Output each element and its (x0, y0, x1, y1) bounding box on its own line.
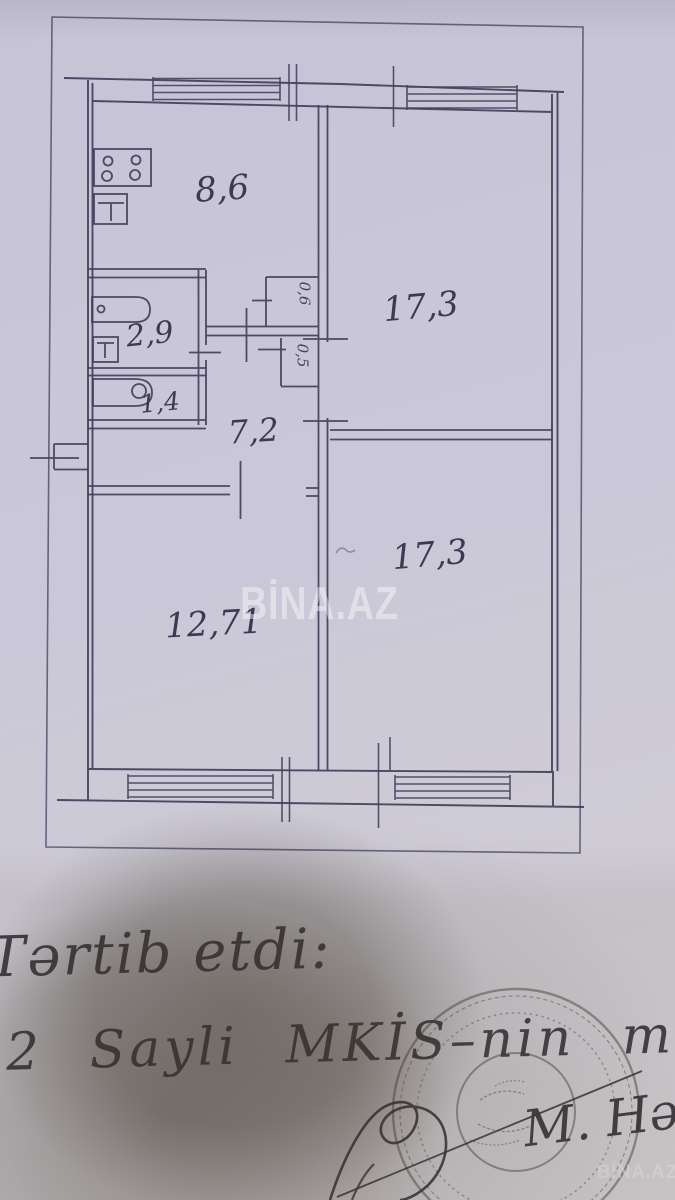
wall-kitchen-hall (206, 327, 318, 336)
bathtub-drain-icon (98, 306, 105, 313)
stove-burner-icon (102, 171, 112, 181)
pen-smudge (336, 548, 355, 553)
bathroom-top-wall (88, 269, 206, 278)
room-label-living-top: 17,3 (382, 287, 460, 327)
bathroom-sink-icon (97, 343, 114, 358)
stove-burner-icon (132, 156, 141, 165)
entry-niche (54, 444, 88, 470)
bath-wc-partition (88, 368, 206, 376)
room-label-wc: 1,4 (139, 388, 181, 416)
interior-walls (30, 105, 553, 770)
sheet-border (46, 17, 583, 853)
stove-burner-icon (104, 157, 113, 166)
top-window-hatch (153, 64, 517, 127)
room-label-kitchen: 8,6 (194, 170, 250, 208)
bina-az-watermark-corner: BİNA.AZ (597, 1162, 675, 1184)
closet-label-bottom: 0,5 (294, 344, 309, 368)
stove-burner-icon (130, 170, 140, 180)
room-label-hall: 7,2 (227, 413, 280, 448)
kitchen-sink-icon (98, 203, 124, 221)
room-label-living-bottom: 17,3 (391, 535, 469, 575)
apartment-outer-walls (57, 78, 584, 807)
wall-hall-bedroom (88, 486, 318, 496)
bathroom-bottom-wall (88, 420, 206, 429)
bina-az-watermark-center: BİNA.AZ (240, 576, 399, 630)
scanned-floor-plan-document: 8,6 17,3 2,9 1,4 7,2 17,3 12,71 0,6 0,5 … (0, 0, 675, 1200)
bathroom-right-wall (199, 270, 207, 425)
window-mullion (282, 757, 290, 822)
closet-label-top: 0,6 (296, 282, 311, 306)
stove-icon (94, 149, 151, 186)
room-label-bath: 2,9 (125, 318, 176, 353)
window-mullion (289, 64, 297, 121)
wall-between-living-rooms (330, 430, 553, 440)
handwritten-line-tertib-etdi: Tərtib etdi: (0, 922, 332, 987)
